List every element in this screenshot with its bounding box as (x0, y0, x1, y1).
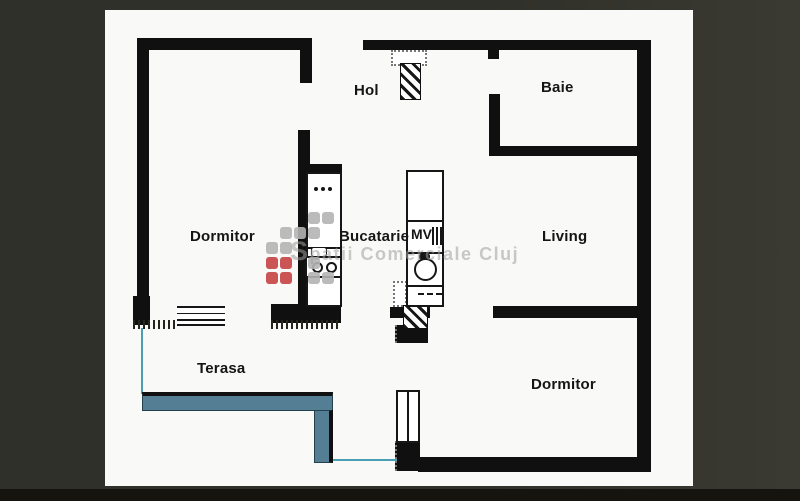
wall-right (637, 40, 651, 472)
room-label-living: Living (542, 228, 587, 245)
terrace-rail-line (141, 328, 143, 394)
wall-baie-door-stub (488, 50, 499, 59)
floor-plan-canvas: MV Hol Baie Dormitor Bucatarie Living Te… (0, 0, 800, 501)
wall-living-south (493, 306, 637, 318)
wall-bottom (418, 457, 651, 472)
window-dormitor-bottom (396, 390, 420, 443)
cabinet-dashed-line (418, 293, 442, 295)
wall-baie-south (489, 146, 637, 156)
wall-hatch-kitchen (271, 320, 341, 329)
wall-stub-hol-west (300, 50, 312, 83)
room-label-dormitor-bottom: Dormitor (531, 376, 596, 393)
terrace-rail-line (333, 459, 397, 461)
interior-door-icon (403, 305, 428, 329)
stove-burner-icon (328, 187, 332, 191)
room-label-terasa: Terasa (197, 360, 245, 377)
hol-wall-insulation (393, 281, 407, 307)
wall-hatch-left (133, 320, 177, 329)
room-label-hol: Hol (354, 82, 379, 99)
watermark-text: Spatii Comerciale Cluj (290, 236, 519, 269)
room-label-baie: Baie (541, 79, 574, 96)
wall-left (137, 38, 149, 300)
wall-top-right (363, 40, 651, 50)
room-label-dormitor-left: Dormitor (190, 228, 255, 245)
window-dormitor-left (177, 306, 225, 326)
terrace-railing-horizontal (142, 392, 333, 411)
entrance-door-icon (400, 63, 421, 100)
wall-top-left (137, 38, 312, 50)
wall-bottom-window-base (395, 441, 420, 471)
terrace-railing-vertical (314, 410, 333, 463)
stove-burner-icon (321, 187, 325, 191)
appliance-divider (408, 285, 442, 287)
photo-bottom-strip (0, 489, 800, 501)
stove-burner-icon (314, 187, 318, 191)
